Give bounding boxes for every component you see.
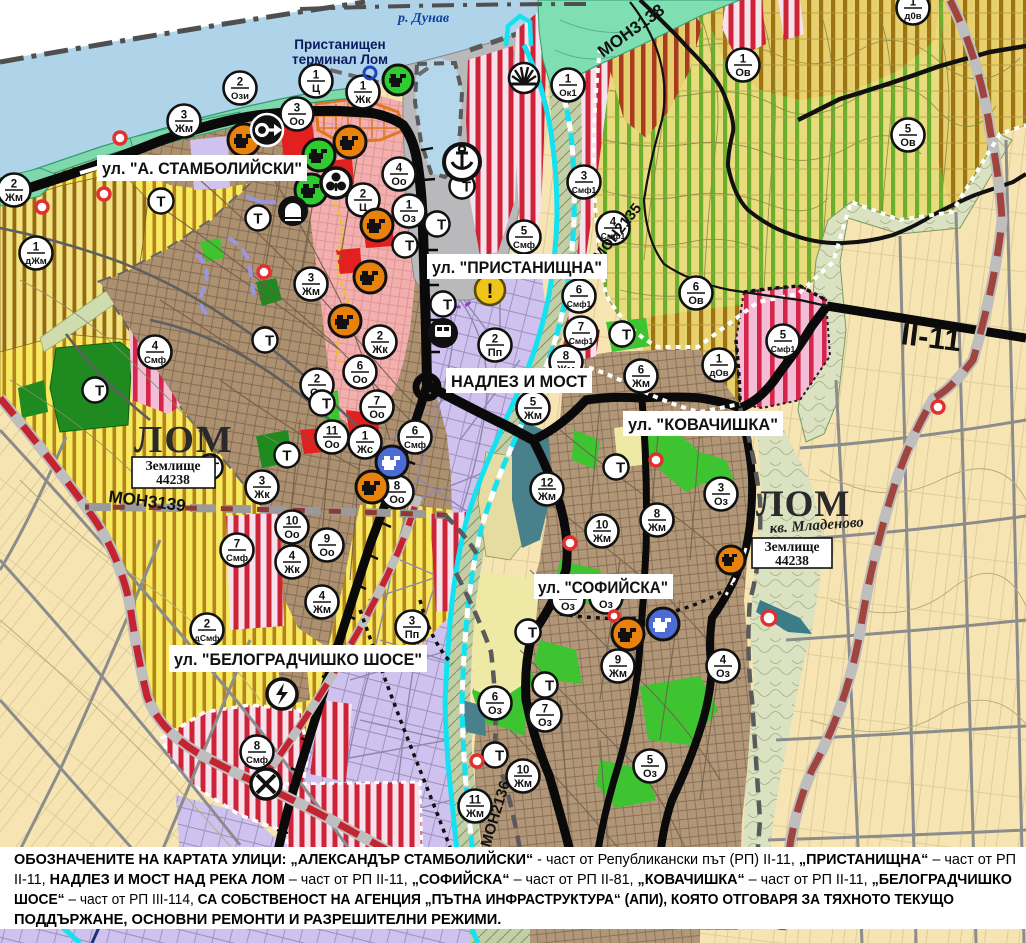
svg-text:7: 7 — [542, 704, 548, 716]
svg-text:2: 2 — [204, 619, 210, 631]
svg-text:Т: Т — [528, 625, 537, 642]
svg-text:44238: 44238 — [775, 553, 809, 568]
svg-text:2: 2 — [237, 77, 243, 89]
svg-text:7: 7 — [578, 322, 584, 334]
svg-text:Жм: Жм — [312, 604, 331, 616]
svg-text:ул. "БЕЛОГРАДЧИШКО ШОСЕ": ул. "БЕЛОГРАДЧИШКО ШОСЕ" — [174, 650, 422, 669]
svg-text:44238: 44238 — [156, 472, 190, 487]
svg-text:1: 1 — [716, 354, 723, 366]
svg-text:Ц: Ц — [312, 83, 320, 95]
svg-text:Т: Т — [282, 448, 291, 465]
svg-text:Жм: Жм — [631, 378, 650, 390]
svg-text:10: 10 — [517, 765, 530, 777]
svg-text:4: 4 — [152, 341, 159, 353]
svg-text:Пп: Пп — [488, 347, 503, 359]
svg-text:3: 3 — [181, 110, 187, 122]
svg-text:2: 2 — [492, 334, 498, 346]
svg-text:Оо: Оо — [369, 409, 385, 421]
svg-text:5: 5 — [647, 755, 654, 767]
svg-text:5: 5 — [530, 397, 537, 409]
svg-text:ОБОЗНАЧЕНИТЕ НА КАРТАТА УЛИЦИ:: ОБОЗНАЧЕНИТЕ НА КАРТАТА УЛИЦИ: „АЛЕКСАНД… — [14, 850, 1016, 868]
svg-text:9: 9 — [324, 534, 330, 546]
svg-text:10: 10 — [286, 516, 299, 528]
svg-text:Оо: Оо — [289, 116, 305, 128]
svg-text:Смф1: Смф1 — [771, 344, 796, 354]
svg-text:д0в: д0в — [904, 11, 921, 22]
svg-text:8: 8 — [394, 481, 401, 493]
svg-text:Т: Т — [405, 238, 414, 255]
svg-text:дСмф: дСмф — [194, 633, 220, 643]
svg-text:Т: Т — [443, 297, 452, 314]
svg-text:1: 1 — [362, 431, 369, 443]
svg-text:Землище: Землище — [764, 539, 819, 554]
svg-text:Ози: Ози — [231, 91, 249, 102]
svg-text:!: ! — [487, 280, 494, 303]
svg-text:3: 3 — [294, 103, 300, 115]
svg-text:Ов: Ов — [688, 295, 704, 307]
svg-text:Жм: Жм — [592, 533, 611, 545]
svg-text:6: 6 — [412, 426, 418, 438]
svg-text:ул. "КОВАЧИШКА": ул. "КОВАЧИШКА" — [628, 415, 778, 434]
svg-text:ул. "А. СТАМБОЛИЙСКИ": ул. "А. СТАМБОЛИЙСКИ" — [102, 159, 302, 178]
svg-text:Т: Т — [545, 678, 554, 695]
svg-text:ШОСЕ“ – част от РП III-114, СА: ШОСЕ“ – част от РП III-114, СА СОБСТВЕНО… — [14, 892, 954, 908]
svg-text:7: 7 — [234, 539, 240, 551]
svg-text:2: 2 — [377, 331, 383, 343]
svg-text:4: 4 — [396, 163, 403, 175]
svg-text:р. Дунав: р. Дунав — [397, 11, 450, 26]
svg-text:5: 5 — [905, 124, 912, 136]
svg-text:Ок1: Ок1 — [559, 88, 577, 99]
svg-text:II-11, НАДЛЕЗ И МОСТ НАД РЕКА: II-11, НАДЛЕЗ И МОСТ НАД РЕКА ЛОМ – част… — [14, 870, 1012, 888]
svg-text:Оз: Оз — [599, 599, 614, 611]
svg-text:Землище: Землище — [145, 458, 200, 473]
svg-text:2: 2 — [11, 179, 17, 191]
svg-text:Жс: Жс — [356, 444, 373, 456]
svg-text:Смф1: Смф1 — [567, 299, 592, 309]
svg-text:3: 3 — [718, 483, 724, 495]
svg-text:ул. "ПРИСТАНИЩНА": ул. "ПРИСТАНИЩНА" — [432, 258, 602, 277]
svg-text:5: 5 — [521, 226, 528, 238]
svg-text:4: 4 — [289, 551, 296, 563]
svg-text:ул. "СОФИЙСКА": ул. "СОФИЙСКА" — [538, 578, 668, 597]
svg-text:1: 1 — [910, 0, 917, 9]
svg-text:Жм: Жм — [647, 522, 666, 534]
svg-text:Т: Т — [437, 217, 446, 234]
svg-text:Ов: Ов — [900, 137, 916, 149]
svg-text:Т: Т — [322, 396, 331, 413]
svg-text:Жм: Жм — [523, 410, 542, 422]
svg-text:Оо: Оо — [324, 439, 340, 451]
svg-text:6: 6 — [576, 285, 582, 297]
svg-text:2: 2 — [314, 374, 320, 386]
svg-text:Т: Т — [95, 383, 104, 400]
svg-text:Жк: Жк — [253, 489, 270, 501]
svg-text:Смф: Смф — [246, 755, 268, 766]
svg-text:Т: Т — [253, 211, 262, 228]
svg-text:Жк: Жк — [354, 94, 371, 106]
svg-text:6: 6 — [357, 361, 363, 373]
svg-text:Смф: Смф — [144, 355, 166, 366]
svg-text:8: 8 — [563, 351, 570, 363]
svg-text:Оз: Оз — [561, 601, 576, 613]
svg-text:1: 1 — [33, 242, 40, 254]
svg-text:Смф: Смф — [226, 553, 248, 564]
svg-text:9: 9 — [615, 655, 621, 667]
svg-text:Оо: Оо — [389, 494, 405, 506]
svg-text:Жм: Жм — [301, 286, 320, 298]
svg-text:Жм: Жм — [174, 123, 193, 135]
svg-text:Т: Т — [495, 748, 504, 765]
svg-text:11: 11 — [469, 795, 482, 807]
svg-text:11: 11 — [326, 426, 339, 438]
svg-text:Смф1: Смф1 — [572, 185, 597, 195]
svg-text:Т: Т — [156, 194, 165, 211]
svg-text:Оз: Оз — [402, 213, 417, 225]
svg-text:Оо: Оо — [352, 374, 368, 386]
svg-text:3: 3 — [581, 171, 587, 183]
svg-text:8: 8 — [254, 741, 261, 753]
svg-text:Т: Т — [265, 333, 274, 350]
svg-text:12: 12 — [541, 478, 554, 490]
svg-text:Оз: Оз — [643, 768, 658, 780]
svg-text:Смф: Смф — [513, 240, 535, 251]
svg-text:Оо: Оо — [284, 529, 300, 541]
svg-text:Т: Т — [622, 327, 631, 344]
svg-text:Оз: Оз — [538, 717, 553, 729]
svg-text:3: 3 — [259, 476, 265, 488]
svg-text:4: 4 — [720, 655, 727, 667]
svg-text:Жм: Жм — [537, 491, 556, 503]
svg-text:Жк: Жк — [371, 344, 388, 356]
svg-text:дОв: дОв — [709, 368, 728, 379]
svg-text:терминал Лом: терминал Лом — [292, 52, 388, 67]
svg-text:Т: Т — [616, 460, 625, 477]
svg-text:6: 6 — [638, 365, 644, 377]
svg-text:1: 1 — [360, 81, 367, 93]
svg-text:7: 7 — [374, 396, 380, 408]
svg-text:Пристанищен: Пристанищен — [294, 37, 385, 52]
svg-text:НАДЛЕЗ И МОСТ: НАДЛЕЗ И МОСТ — [451, 372, 588, 391]
svg-text:Жм: Жм — [513, 778, 532, 790]
svg-text:4: 4 — [319, 591, 326, 603]
svg-text:Жм: Жм — [608, 668, 627, 680]
svg-text:6: 6 — [492, 692, 498, 704]
svg-text:Оо: Оо — [391, 176, 407, 188]
svg-text:1: 1 — [740, 54, 747, 66]
svg-text:5: 5 — [780, 330, 787, 342]
svg-text:ЛОМ: ЛОМ — [134, 419, 234, 461]
svg-text:Оз: Оз — [714, 496, 729, 508]
svg-text:3: 3 — [409, 616, 415, 628]
svg-text:1: 1 — [313, 70, 320, 82]
svg-text:Оо: Оо — [319, 547, 335, 559]
svg-text:Смф1: Смф1 — [569, 336, 594, 346]
svg-text:II-11: II-11 — [899, 316, 963, 358]
svg-text:1: 1 — [406, 200, 413, 212]
svg-text:10: 10 — [596, 520, 609, 532]
svg-text:2: 2 — [360, 189, 366, 201]
svg-text:Жм: Жм — [4, 192, 23, 204]
svg-text:дЖм: дЖм — [25, 256, 47, 267]
svg-text:Ов: Ов — [735, 67, 751, 79]
svg-text:1: 1 — [565, 74, 572, 86]
svg-text:Жм: Жм — [465, 808, 484, 820]
svg-text:Оз: Оз — [488, 705, 503, 717]
svg-text:Оз: Оз — [716, 668, 731, 680]
svg-text:3: 3 — [308, 273, 314, 285]
svg-text:6: 6 — [693, 282, 699, 294]
svg-text:8: 8 — [654, 509, 661, 521]
svg-text:Смф: Смф — [404, 440, 426, 451]
svg-text:Жк: Жк — [283, 564, 300, 576]
svg-text:Пп: Пп — [405, 629, 420, 641]
svg-text:ПОДДЪРЖАНЕ, ОСНОВНИ РЕМОНТИ И: ПОДДЪРЖАНЕ, ОСНОВНИ РЕМОНТИ И РАЗРЕШИТЕЛ… — [14, 912, 501, 928]
